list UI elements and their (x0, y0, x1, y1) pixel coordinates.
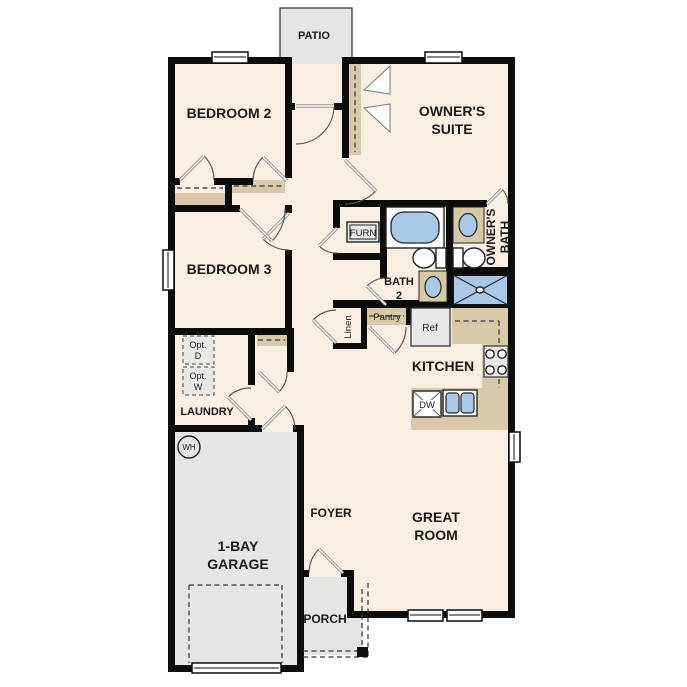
shower-drain (476, 287, 484, 293)
furnace-label: FURN (350, 228, 377, 239)
wall-segment (334, 103, 342, 110)
wall-segment (287, 328, 294, 372)
burner (486, 366, 494, 374)
burner (498, 350, 506, 358)
wall-segment (168, 665, 192, 672)
bedroom2-closet-shelf (175, 193, 225, 205)
wall-segment (333, 207, 340, 228)
wall-segment (333, 200, 487, 207)
opt-washer-label-1: Opt. (189, 371, 206, 381)
owners-bath-label-2: BATH (498, 221, 512, 253)
porch-label: PORCH (303, 612, 346, 626)
kitchen-label: KITCHEN (412, 358, 474, 374)
wall-segment (168, 57, 175, 672)
great-room-label-2: ROOM (414, 527, 458, 543)
floor-plan-page: PATIO BEDROOM 2 OWNER'S SUITE BEDROOM 3 … (0, 0, 687, 687)
foyer-label: FOYER (310, 506, 352, 520)
patio-label: PATIO (298, 30, 330, 42)
owners-bath-sink (459, 214, 477, 237)
wall-segment (168, 328, 290, 335)
wall-segment (168, 205, 240, 212)
floor-plan-drawing: PATIO BEDROOM 2 OWNER'S SUITE BEDROOM 3 … (0, 0, 687, 687)
porch-post (357, 647, 368, 657)
owners-toilet-tank (453, 248, 463, 268)
wall-segment (333, 343, 367, 349)
laundry-label: LAUNDRY (180, 406, 234, 418)
bedroom2-label: BEDROOM 2 (187, 105, 272, 121)
opt-dryer-label-1: Opt. (189, 340, 206, 350)
owners-suite-label-2: SUITE (431, 121, 472, 137)
wall-segment (214, 178, 253, 185)
kitchen-sink-basin (461, 393, 474, 413)
wall-segment (508, 57, 515, 618)
owners-suite-label-1: OWNER'S (419, 103, 485, 119)
opt-washer-label-2: W (194, 382, 203, 392)
bath2-toilet (413, 248, 435, 268)
linen-label: Linen (343, 315, 354, 338)
wall-segment (285, 250, 292, 335)
wall-segment (285, 57, 292, 178)
pantry-label: Pantry (373, 312, 401, 323)
water-heater-label: WH (182, 443, 196, 452)
great-room-label-1: GREAT (412, 509, 460, 525)
burner (498, 366, 506, 374)
garage-label-2: GARAGE (207, 556, 268, 572)
bath2-toilet-tank (436, 248, 446, 268)
bedroom3-label: BEDROOM 3 (187, 261, 272, 277)
bath2-label-2: 2 (396, 290, 402, 302)
owners-bath-label-1: OWNER'S (484, 209, 498, 266)
bath2-label-1: BATH (384, 276, 414, 288)
wall-segment (303, 570, 309, 577)
wall-segment (361, 308, 367, 345)
bathtub (391, 212, 439, 243)
opt-dryer-label-2: D (195, 351, 202, 361)
wall-segment (347, 570, 354, 618)
wall-segment (285, 103, 295, 110)
kitchen-sink-basin (446, 393, 459, 413)
wall-segment (333, 253, 387, 260)
wall-segment (248, 335, 255, 385)
wall-segment (168, 178, 180, 185)
refrigerator-label: Ref (422, 323, 438, 334)
wall-segment (342, 57, 349, 110)
bath2-sink (425, 277, 441, 298)
owners-toilet (463, 248, 485, 268)
garage-label-1: 1-BAY (218, 538, 259, 554)
dishwasher-label: DW (419, 400, 435, 411)
wall-segment (297, 425, 304, 672)
wall-segment (342, 110, 349, 158)
burner (486, 350, 494, 358)
wall-segment (285, 205, 292, 213)
